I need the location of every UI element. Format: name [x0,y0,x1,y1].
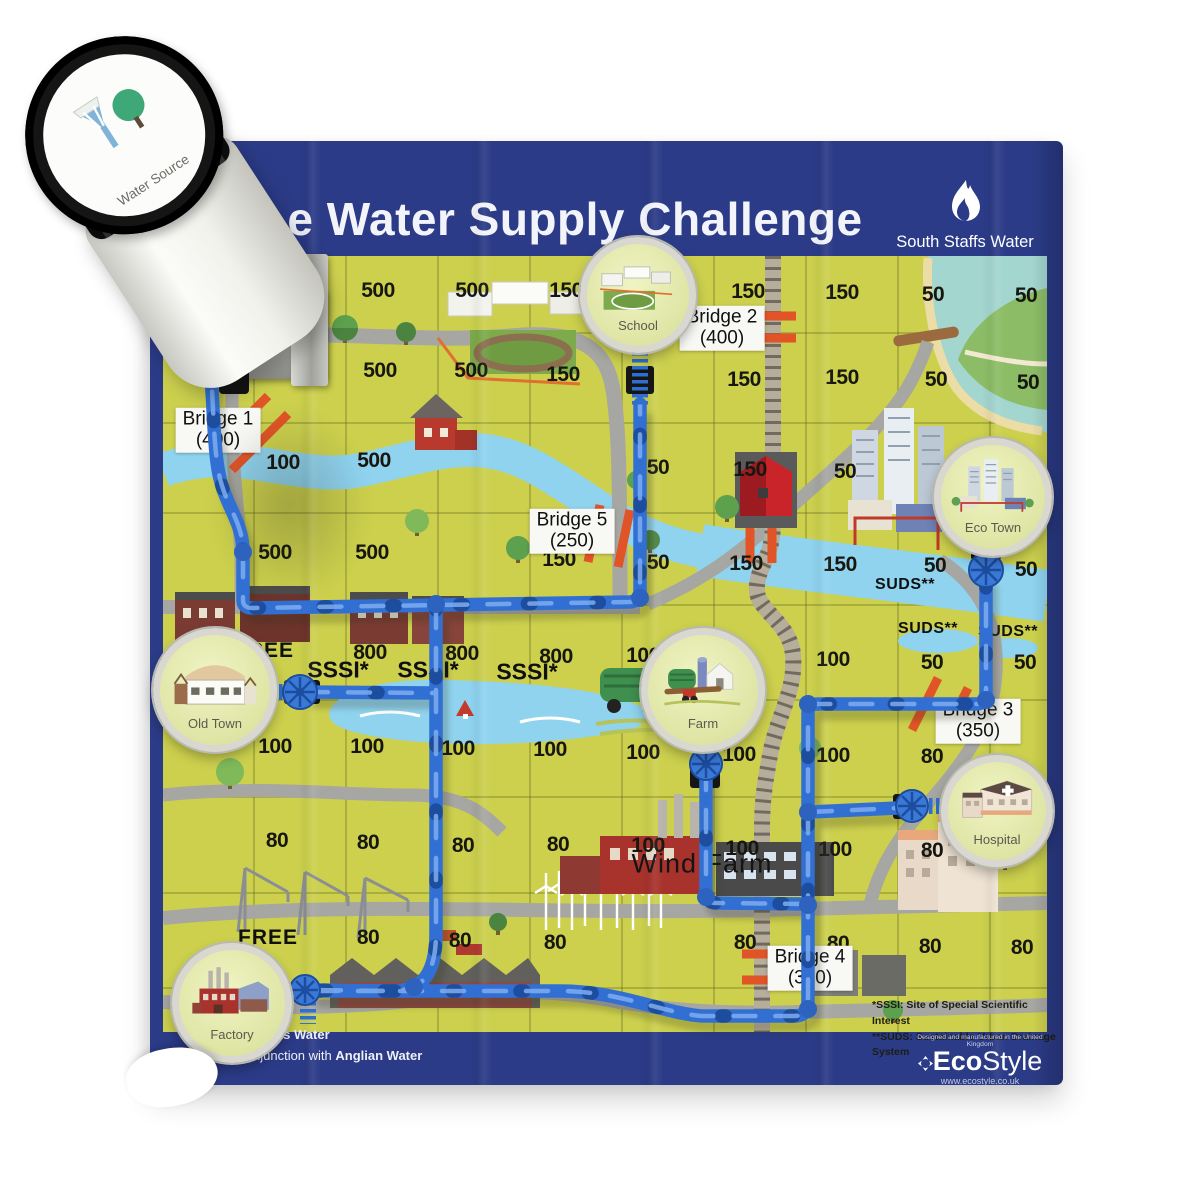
factory-illustration [187,963,276,1027]
location-label: Factory [179,1027,285,1042]
school-illustration [595,256,681,317]
location-factory: Factory [172,943,292,1063]
hospital-illustration [956,774,1038,833]
farm-illustration [657,648,749,714]
location-label: Hospital [948,832,1046,847]
water-source-icon [53,64,177,181]
location-farm: Farm [641,628,765,752]
old-town-illustration [169,648,261,714]
location-old-town: Old Town [153,628,277,752]
location-label: Eco Town [941,520,1045,535]
location-label: Farm [648,716,758,731]
location-label: School [587,318,689,333]
location-school: School [580,237,696,353]
eco-town-illustration [949,457,1036,519]
location-eco-town: Eco Town [934,438,1052,556]
location-label: Old Town [160,716,270,731]
product-photo: e Water Supply Challenge South Staffs Wa… [0,0,1200,1200]
location-hospital: Hospital [941,755,1053,867]
